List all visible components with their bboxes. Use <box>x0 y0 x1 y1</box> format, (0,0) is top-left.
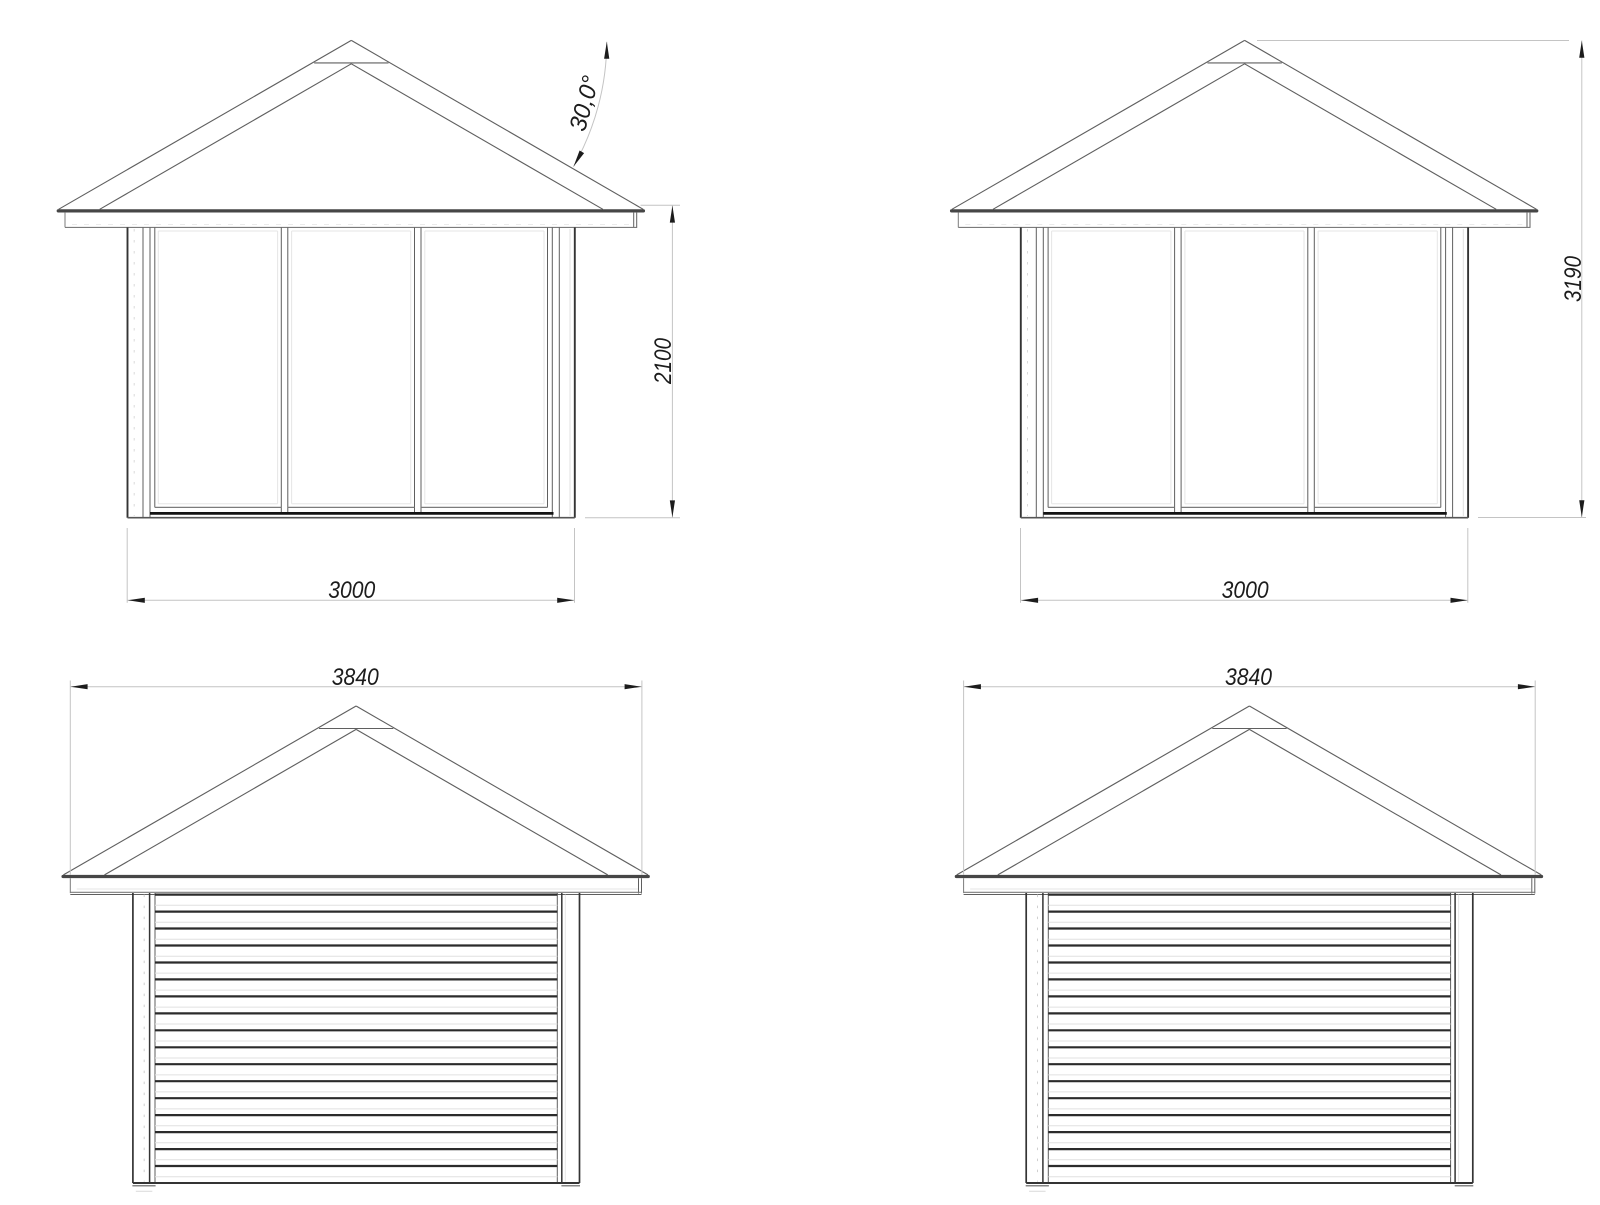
svg-text:3190: 3190 <box>1560 255 1587 302</box>
svg-text:3840: 3840 <box>332 664 380 691</box>
svg-text:2100: 2100 <box>650 337 677 384</box>
svg-text:3000: 3000 <box>328 577 376 604</box>
svg-text:3840: 3840 <box>1225 664 1273 691</box>
svg-text:3000: 3000 <box>1222 577 1270 604</box>
